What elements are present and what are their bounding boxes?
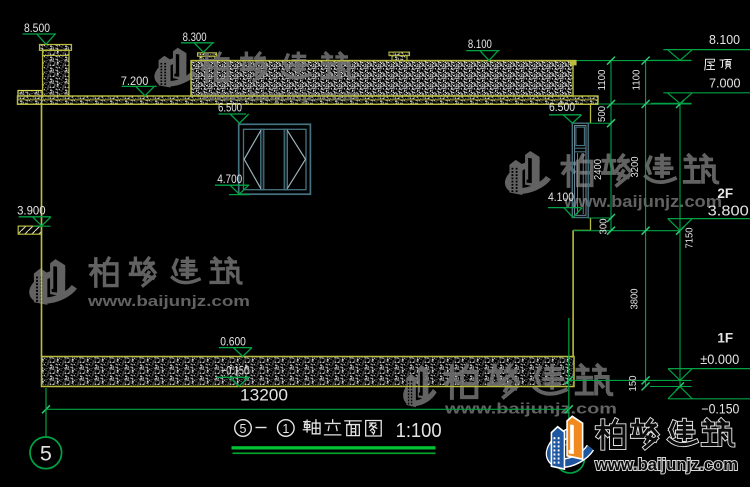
svg-text:3.800: 3.800 xyxy=(708,203,749,220)
svg-text:3200: 3200 xyxy=(630,156,641,178)
svg-text:±0.000: ±0.000 xyxy=(700,352,739,367)
svg-text:www.baijunjz.com: www.baijunjz.com xyxy=(594,456,738,474)
svg-text:8.500: 8.500 xyxy=(24,21,50,35)
svg-text:150: 150 xyxy=(628,375,639,392)
svg-text:4.100: 4.100 xyxy=(548,190,574,204)
svg-text:6.500: 6.500 xyxy=(218,101,242,115)
svg-text:www.baijunjz.com: www.baijunjz.com xyxy=(87,294,250,310)
svg-text:500: 500 xyxy=(597,105,608,122)
svg-text:3.900: 3.900 xyxy=(17,204,46,218)
svg-text:5: 5 xyxy=(240,422,247,436)
svg-text:8.100: 8.100 xyxy=(709,32,740,47)
svg-text:www.baijunjz.com: www.baijunjz.com xyxy=(563,193,722,211)
svg-text:−0.150: −0.150 xyxy=(221,364,249,378)
svg-text:8.100: 8.100 xyxy=(468,37,492,51)
svg-text:4.700: 4.700 xyxy=(217,172,242,186)
svg-text:5: 5 xyxy=(40,442,52,466)
svg-text:1F: 1F xyxy=(717,331,733,346)
svg-text:7150: 7150 xyxy=(685,227,696,249)
svg-text:6.500: 6.500 xyxy=(549,100,575,114)
svg-text:8.300: 8.300 xyxy=(183,30,207,44)
svg-text:1100: 1100 xyxy=(632,69,643,91)
svg-text:13200: 13200 xyxy=(240,387,288,405)
svg-text:1100: 1100 xyxy=(597,69,608,91)
svg-text:0.600: 0.600 xyxy=(220,335,246,349)
svg-text:3800: 3800 xyxy=(630,288,641,310)
svg-text:2F: 2F xyxy=(717,186,733,201)
svg-text:300: 300 xyxy=(599,218,610,235)
svg-text:7.000: 7.000 xyxy=(709,75,741,90)
svg-text:2400: 2400 xyxy=(593,158,604,180)
svg-text:−0.150: −0.150 xyxy=(701,402,739,417)
svg-text:1:100: 1:100 xyxy=(396,420,442,442)
svg-text:1: 1 xyxy=(282,422,289,436)
